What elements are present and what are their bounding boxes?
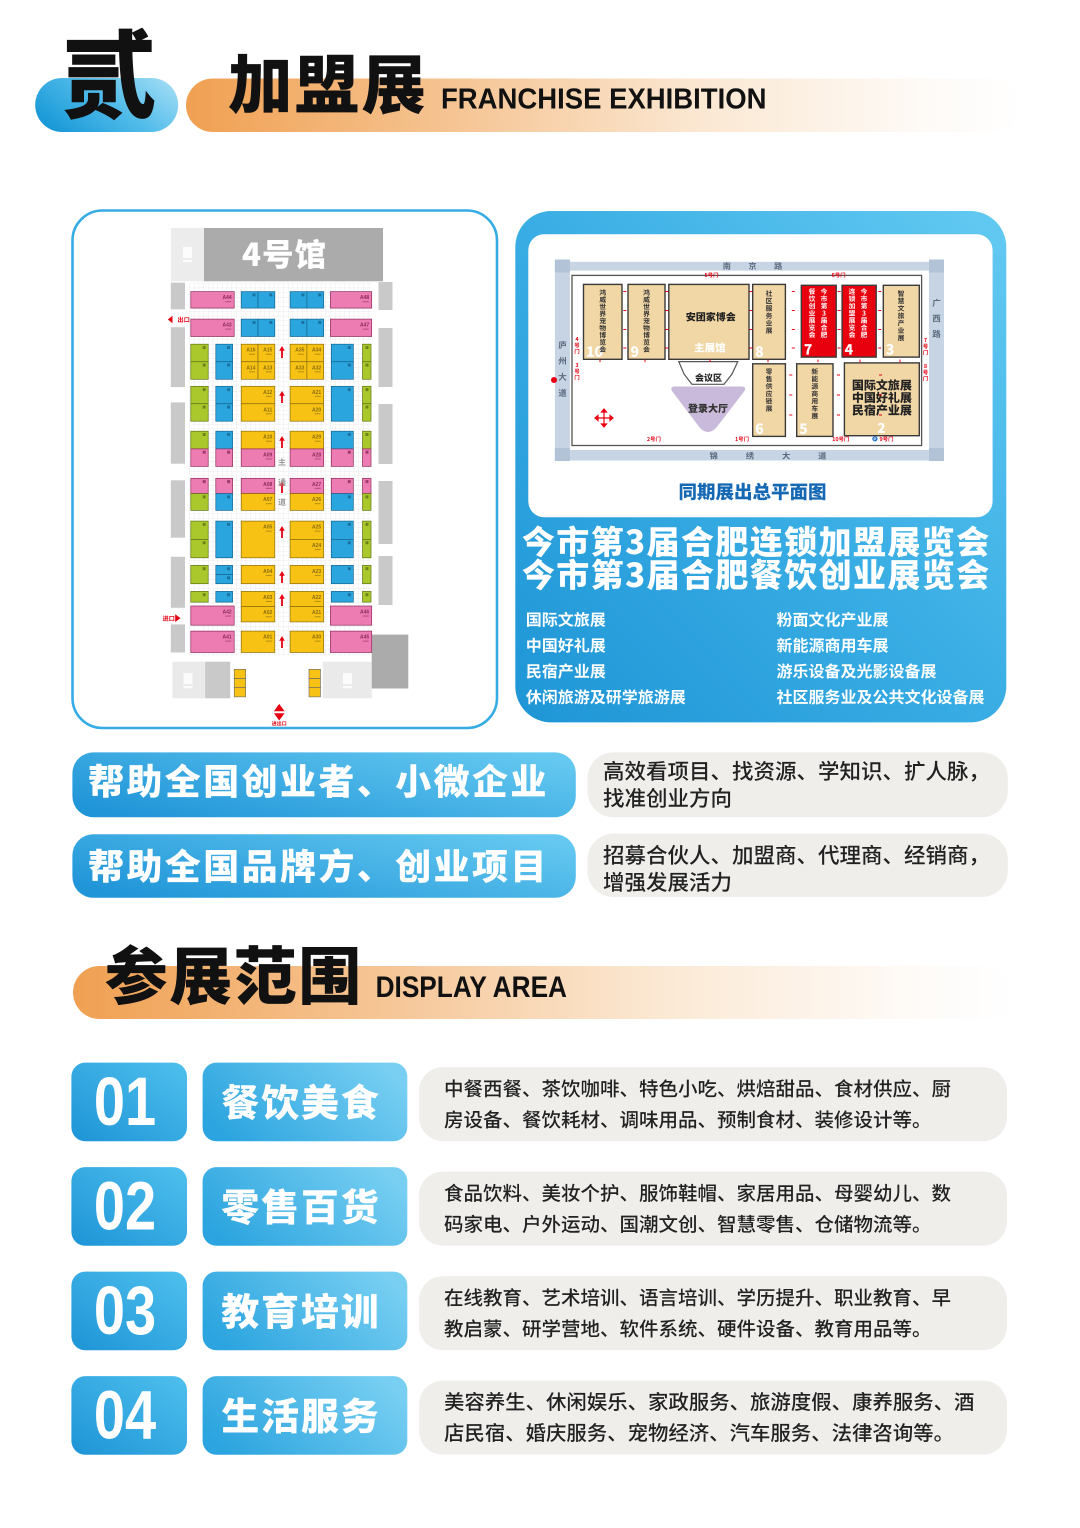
- svg-text:A23: A23: [312, 569, 321, 575]
- svg-text:A03: A03: [263, 595, 272, 601]
- svg-text:A01: A01: [263, 635, 272, 641]
- svg-text:A33: A33: [295, 365, 304, 371]
- svg-text:A13: A13: [263, 365, 272, 371]
- svg-text:A30: A30: [312, 635, 321, 641]
- svg-text:A16: A16: [246, 348, 255, 354]
- svg-text:A26: A26: [312, 497, 321, 503]
- svg-text:A32: A32: [312, 365, 321, 371]
- svg-text:A14: A14: [246, 365, 255, 371]
- svg-text:A24: A24: [312, 543, 321, 549]
- svg-text:A27: A27: [312, 482, 321, 488]
- svg-text:A28: A28: [312, 452, 321, 458]
- svg-text:02: 02: [94, 1168, 156, 1245]
- svg-text:A46: A46: [360, 610, 369, 616]
- svg-text:A22: A22: [312, 595, 321, 601]
- svg-text:A41: A41: [223, 635, 232, 641]
- svg-text:A10: A10: [263, 435, 272, 441]
- svg-text:A20: A20: [312, 407, 321, 413]
- svg-text:A15: A15: [263, 348, 272, 354]
- svg-text:A25: A25: [312, 525, 321, 531]
- svg-text:A21: A21: [312, 610, 321, 616]
- svg-text:A11: A11: [263, 407, 272, 413]
- svg-text:A12: A12: [263, 390, 272, 396]
- svg-text:A05: A05: [263, 525, 272, 531]
- svg-text:03: 03: [94, 1272, 156, 1349]
- svg-text:A09: A09: [263, 452, 272, 458]
- svg-text:A07: A07: [263, 497, 272, 503]
- svg-text:A45: A45: [360, 635, 369, 641]
- svg-text:FRANCHISE EXHIBITION: FRANCHISE EXHIBITION: [441, 84, 767, 116]
- svg-text:A48: A48: [360, 295, 369, 301]
- svg-text:A35: A35: [295, 348, 304, 354]
- svg-text:04: 04: [94, 1377, 156, 1454]
- svg-text:A43: A43: [223, 323, 232, 329]
- svg-text:A34: A34: [312, 348, 321, 354]
- svg-text:A08: A08: [263, 482, 272, 488]
- svg-text:A44: A44: [223, 295, 232, 301]
- svg-text:A42: A42: [223, 610, 232, 616]
- svg-text:A29: A29: [312, 435, 321, 441]
- svg-text:A47: A47: [360, 323, 369, 329]
- svg-text:A04: A04: [263, 569, 272, 575]
- svg-text:A21: A21: [312, 390, 321, 396]
- svg-text:P: P: [874, 437, 877, 442]
- svg-text:01: 01: [94, 1063, 156, 1140]
- svg-text:A02: A02: [263, 610, 272, 616]
- svg-text:DISPLAY AREA: DISPLAY AREA: [376, 971, 567, 1004]
